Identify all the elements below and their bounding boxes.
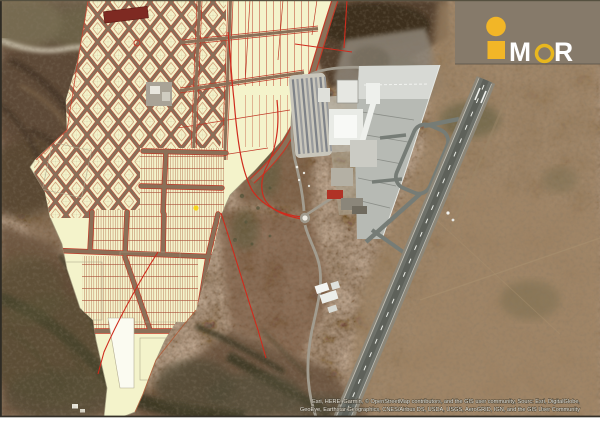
svg-text:GeoEye, Earthstar Geographics,: GeoEye, Earthstar Geographics, CNES/Airb… <box>300 407 580 413</box>
svg-text:Esri, HERE, Garmin, © OpenStre: Esri, HERE, Garmin, © OpenStreetMap cont… <box>312 398 580 405</box>
svg-text:R: R <box>554 37 573 67</box>
svg-text:M: M <box>509 37 531 67</box>
